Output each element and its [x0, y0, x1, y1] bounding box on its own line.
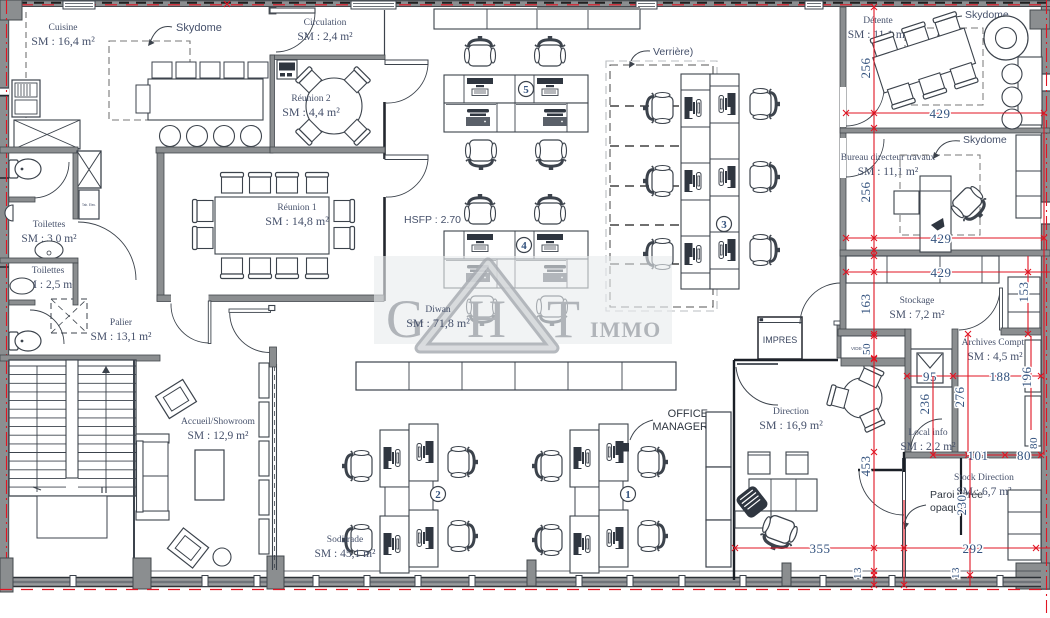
svg-text:OFFICE: OFFICE: [668, 408, 708, 420]
svg-text:IMMO: IMMO: [590, 317, 661, 342]
svg-text:80: 80: [1028, 437, 1040, 449]
svg-text:276: 276: [952, 387, 967, 408]
svg-text:Détente: Détente: [863, 16, 893, 26]
svg-text:SM : 4,4 m²: SM : 4,4 m²: [282, 105, 340, 119]
svg-text:163: 163: [858, 294, 873, 315]
svg-text:5: 5: [523, 84, 529, 96]
svg-text:256: 256: [858, 182, 873, 203]
svg-text:IMPRES: IMPRES: [763, 335, 798, 345]
svg-text:3: 3: [721, 219, 727, 231]
svg-text:230: 230: [954, 495, 969, 516]
svg-text:Réunion 2: Réunion 2: [291, 94, 331, 104]
svg-text:355: 355: [810, 541, 831, 556]
svg-text:4: 4: [521, 240, 527, 252]
svg-text:80: 80: [1017, 448, 1031, 463]
svg-text:Toilettes: Toilettes: [32, 266, 65, 276]
svg-text:Direction: Direction: [773, 407, 809, 417]
svg-text:Bureau directeur travaux: Bureau directeur travaux: [841, 153, 936, 163]
svg-text:429: 429: [931, 231, 952, 246]
svg-text:13: 13: [950, 567, 962, 579]
svg-text:SM : 11,1 m²: SM : 11,1 m²: [858, 166, 919, 178]
svg-text:2: 2: [435, 489, 441, 501]
svg-text:Stock Direction: Stock Direction: [954, 473, 1014, 483]
svg-text:196: 196: [1019, 367, 1034, 388]
svg-text:Archives Compta: Archives Compta: [962, 338, 1030, 348]
svg-text:Diwan: Diwan: [425, 305, 451, 315]
svg-text:SM : 14,8 m²: SM : 14,8 m²: [265, 214, 329, 228]
svg-text:13: 13: [852, 567, 864, 579]
svg-text:SM : 2,4 m²: SM : 2,4 m²: [297, 31, 353, 43]
svg-text:Cuisine: Cuisine: [48, 23, 77, 33]
svg-text:Toilettes: Toilettes: [33, 220, 66, 230]
svg-text:SM : 45,1 m²: SM : 45,1 m²: [315, 548, 377, 560]
svg-text:256: 256: [858, 58, 873, 79]
svg-text:50: 50: [861, 343, 873, 355]
svg-text:Réunion 1: Réunion 1: [277, 203, 317, 213]
svg-text:101: 101: [968, 448, 989, 463]
svg-text:153: 153: [1016, 282, 1031, 303]
svg-text:Palier: Palier: [110, 318, 133, 328]
svg-text:Accueil/Showroom: Accueil/Showroom: [181, 417, 255, 427]
svg-text:SM : 2,2 m²: SM : 2,2 m²: [900, 441, 956, 453]
svg-text:H: H: [467, 289, 506, 349]
svg-text:SM : 16,9 m²: SM : 16,9 m²: [759, 418, 823, 432]
svg-text:SM : 12,9 m²: SM : 12,9 m²: [188, 430, 250, 442]
svg-text:Stockage: Stockage: [900, 296, 935, 306]
svg-text:SM : 16,4 m²: SM : 16,4 m²: [31, 34, 95, 48]
svg-text:Skydome: Skydome: [963, 134, 1007, 146]
svg-text:188: 188: [990, 369, 1011, 384]
svg-text:SM : 7,2 m²: SM : 7,2 m²: [889, 309, 945, 321]
svg-text:Soditrade: Soditrade: [327, 535, 363, 545]
svg-text:429: 429: [930, 106, 951, 121]
svg-text:Tab. Elec.: Tab. Elec.: [82, 203, 96, 207]
svg-text:429: 429: [931, 265, 952, 280]
svg-text:SM : 4,5 m²: SM : 4,5 m²: [967, 351, 1023, 363]
svg-text:1: 1: [625, 489, 631, 501]
svg-text:236: 236: [917, 394, 932, 415]
svg-text:MANAGER: MANAGER: [652, 421, 708, 433]
svg-text:HSFP : 2.70: HSFP : 2.70: [404, 214, 461, 226]
svg-text:Skydome: Skydome: [176, 22, 222, 34]
svg-text:292: 292: [963, 541, 984, 556]
svg-text:Circulation: Circulation: [304, 18, 347, 28]
svg-text:SM : 13,1 m²: SM : 13,1 m²: [91, 331, 153, 343]
svg-text:SM : 71,8 m²: SM : 71,8 m²: [406, 316, 470, 330]
svg-text:453: 453: [858, 456, 873, 477]
svg-text:95: 95: [923, 369, 937, 384]
svg-text:Verrière): Verrière): [653, 46, 693, 58]
